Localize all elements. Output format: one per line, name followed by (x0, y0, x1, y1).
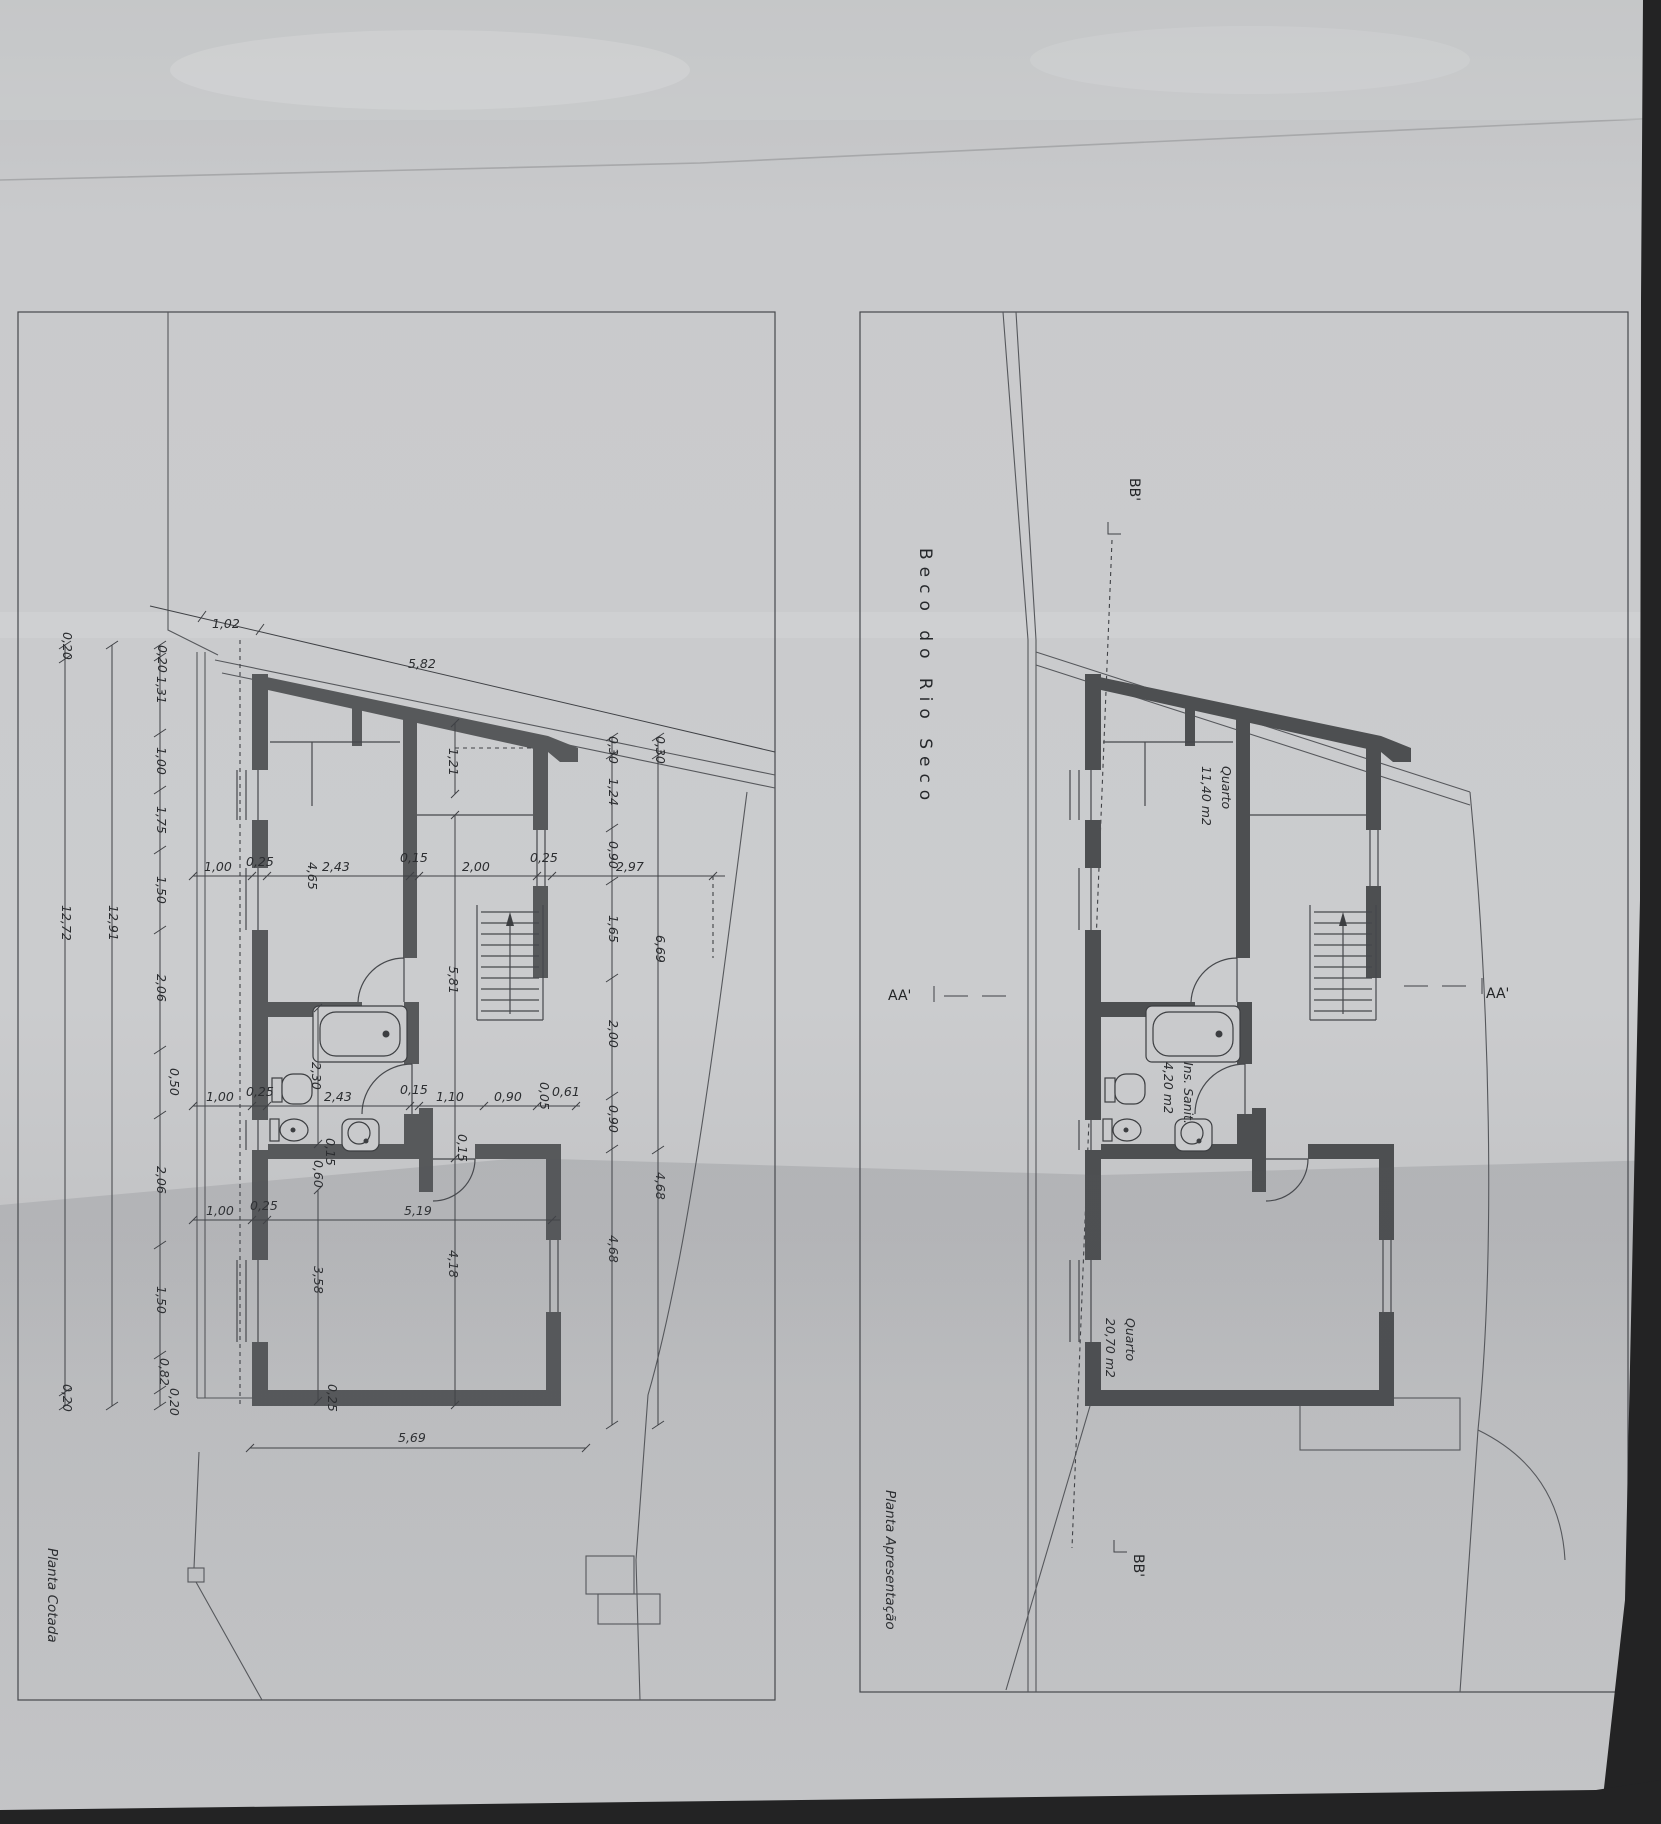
dim-label: 5,82 (408, 656, 436, 671)
photographed-drawing-sheet: 0,20 1,31 1,00 1,75 1,50 2,06 0,50 2,06 … (0, 0, 1661, 1824)
dim-label: 2,00 (462, 859, 490, 874)
section-marker-aa-right: AA' (1486, 986, 1509, 1002)
dim-label: 2,43 (324, 1089, 352, 1104)
dim-label: 0,90 (606, 1105, 621, 1133)
dim-label: 12,91 (106, 905, 121, 941)
section-marker-aa-left: AA' (888, 988, 911, 1004)
light-reflection (170, 30, 690, 110)
dim-label: 1,65 (606, 915, 621, 943)
dim-label: 0,15 (400, 850, 428, 865)
dim-label: 0,50 (167, 1068, 182, 1096)
dim-label: 4,65 (305, 862, 320, 890)
room-name: Ins. Sanit. (1181, 1062, 1196, 1124)
dim-label: 2,06 (154, 1166, 169, 1194)
dim-label: 0,05 (537, 1082, 552, 1110)
dim-label: 0,25 (246, 1084, 274, 1099)
dim-label: 1,00 (154, 747, 169, 775)
dim-label: 1,00 (206, 1089, 234, 1104)
dim-label: 2,43 (322, 859, 350, 874)
dim-label: 12,72 (59, 905, 74, 941)
light-reflection (1030, 26, 1470, 94)
dim-label: 0,30 (606, 736, 621, 764)
dim-label: 0,20 (155, 645, 170, 673)
dim-label: 0,15 (400, 1082, 428, 1097)
floor-plan-drawing: 0,20 1,31 1,00 1,75 1,50 2,06 0,50 2,06 … (0, 0, 1661, 1824)
dim-label: 2,00 (606, 1020, 621, 1048)
dim-label: 0,25 (530, 850, 558, 865)
paper-top-crease (0, 118, 1661, 180)
dim-label: 1,00 (204, 859, 232, 874)
section-marker-bb-top: BB' (1126, 478, 1142, 501)
dim-label: 0,15 (455, 1134, 470, 1162)
street-title: Beco do Rio Seco (915, 548, 935, 807)
dim-label: 0,30 (653, 736, 668, 764)
paper-crease-highlight (0, 612, 1661, 638)
dim-label: 0,20 (60, 632, 75, 660)
room-name: Quarto (1219, 766, 1234, 809)
dim-label: 5,81 (446, 966, 461, 994)
dim-label: 0,90 (494, 1089, 522, 1104)
dim-label: 2,06 (154, 974, 169, 1002)
dim-label: 2,30 (309, 1062, 324, 1090)
room-area: 4,20 m2 (1161, 1062, 1176, 1114)
dim-label: 1,31 (154, 676, 169, 704)
dim-label: 1,24 (606, 778, 621, 806)
dim-label: 1,50 (154, 876, 169, 904)
dim-label: 0,90 (606, 841, 621, 869)
fold-shadow (0, 1158, 1661, 1824)
dim-label: 1,21 (446, 748, 461, 776)
dim-label: 0,61 (552, 1084, 580, 1099)
dim-label: 1,75 (154, 806, 169, 834)
dim-label: 1,02 (212, 616, 240, 631)
dim-label: 6,69 (653, 935, 668, 963)
room-area: 11,40 m2 (1199, 766, 1214, 826)
dim-label: 1,10 (436, 1089, 464, 1104)
dim-label: 0,25 (246, 854, 274, 869)
